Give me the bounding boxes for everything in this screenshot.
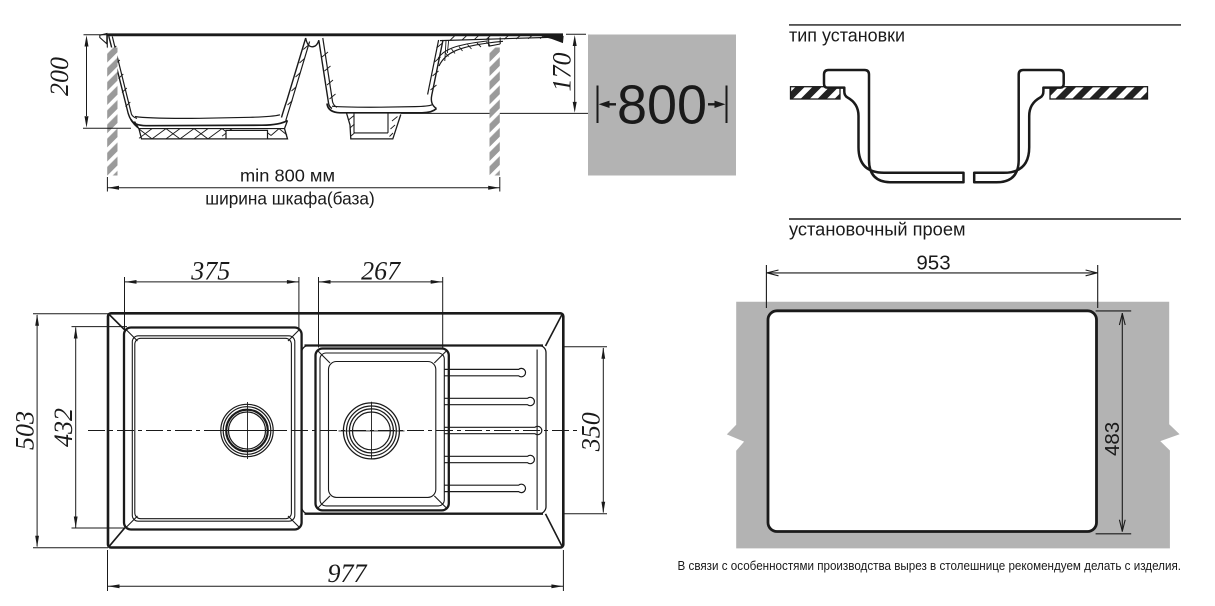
svg-text:483: 483 (1101, 422, 1124, 456)
svg-text:установочный проем: установочный проем (789, 220, 966, 240)
svg-text:170: 170 (548, 53, 577, 92)
svg-text:200: 200 (45, 57, 74, 96)
svg-text:432: 432 (49, 408, 78, 447)
svg-text:800: 800 (617, 74, 707, 136)
svg-text:375: 375 (190, 257, 230, 286)
svg-text:350: 350 (577, 412, 606, 452)
svg-text:ширина шкафа(база): ширина шкафа(база) (205, 188, 375, 208)
svg-text:503: 503 (11, 411, 40, 450)
svg-text:тип установки: тип установки (789, 25, 905, 45)
svg-text:В связи с особенностями произв: В связи с особенностями производства выр… (678, 558, 1182, 573)
svg-text:977: 977 (328, 559, 368, 588)
svg-text:min 800 мм: min 800 мм (240, 166, 335, 186)
svg-text:953: 953 (916, 252, 950, 275)
svg-text:267: 267 (361, 257, 401, 286)
